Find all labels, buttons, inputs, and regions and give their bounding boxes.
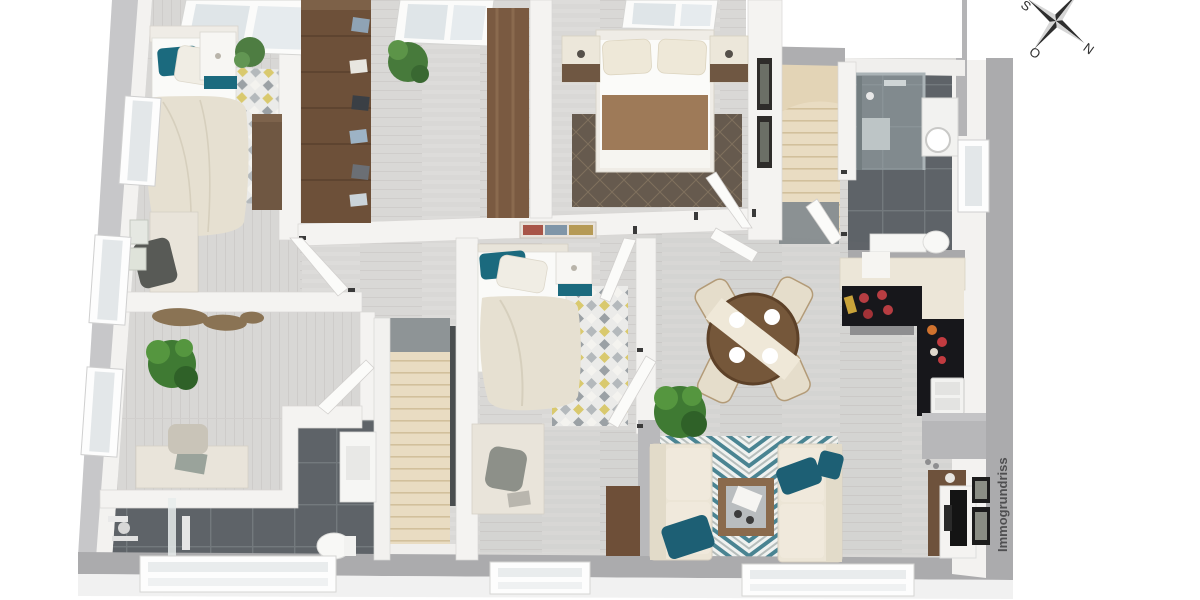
svg-text:Immogrundriss: Immogrundriss	[995, 457, 1010, 552]
